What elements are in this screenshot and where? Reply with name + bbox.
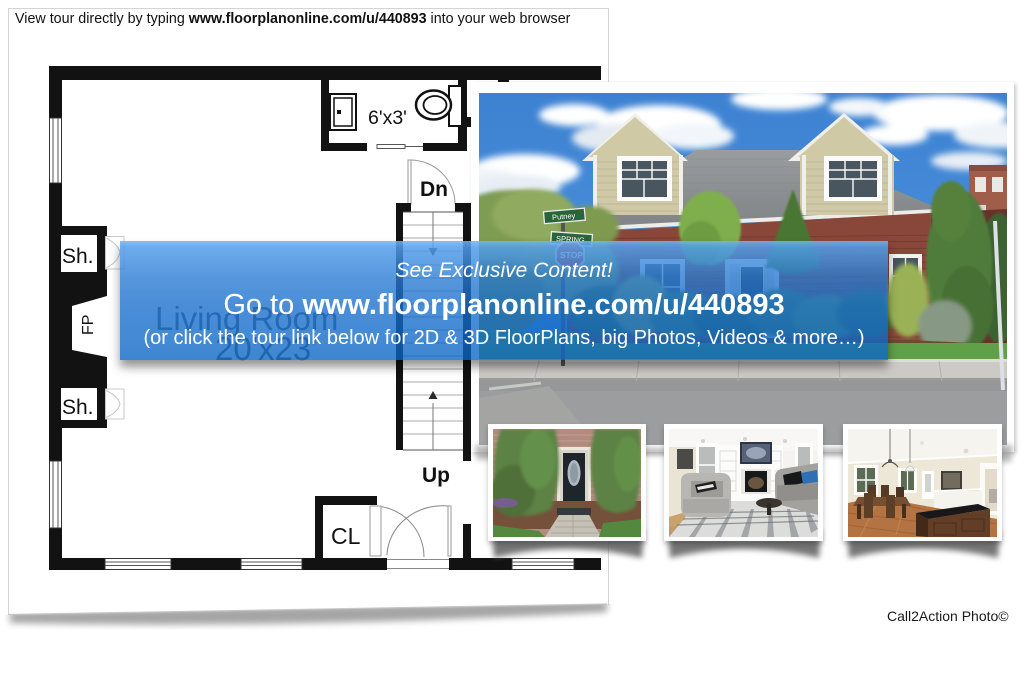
svg-text:6'x3': 6'x3': [368, 107, 407, 129]
svg-text:Up: Up: [422, 464, 450, 487]
svg-text:CL: CL: [331, 523, 361, 549]
svg-text:Sh.: Sh.: [62, 396, 94, 419]
svg-text:FP: FP: [80, 315, 97, 335]
svg-text:Dn: Dn: [420, 178, 448, 201]
svg-text:Sh.: Sh.: [62, 245, 94, 268]
